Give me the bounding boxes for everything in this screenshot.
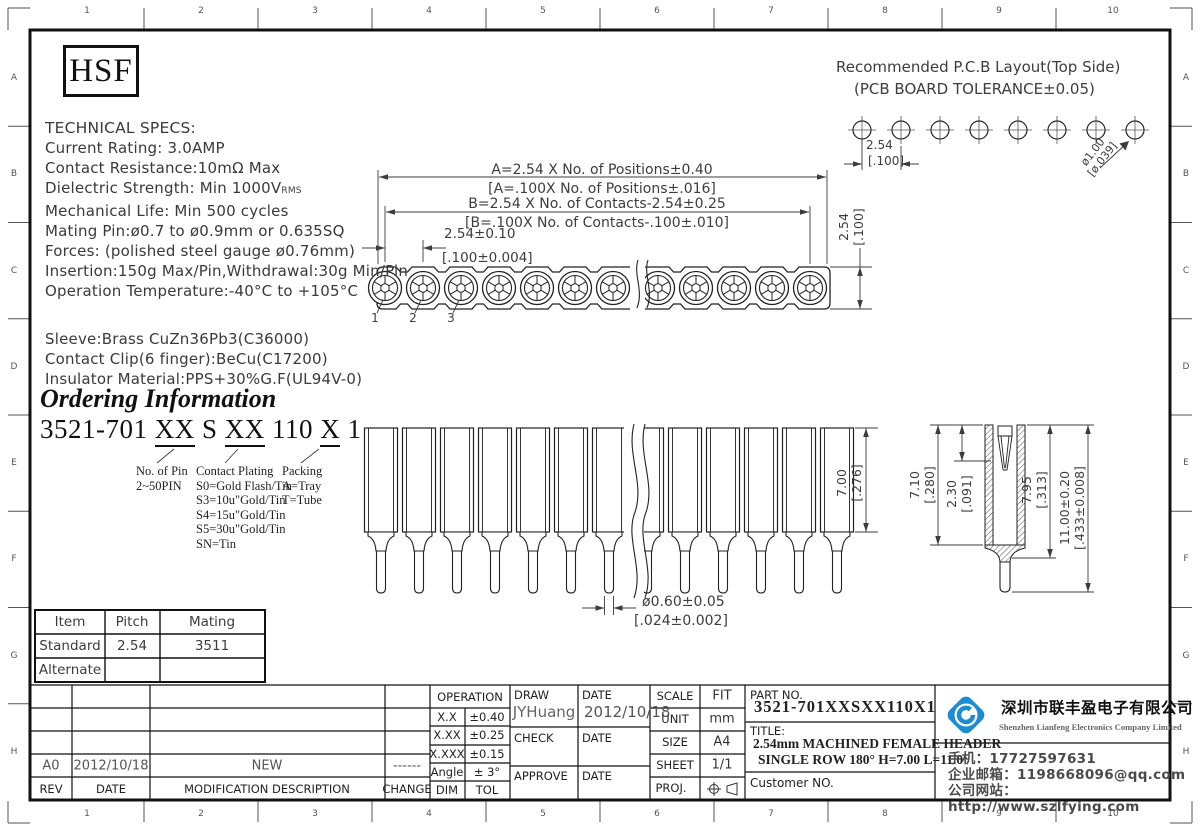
front-view-break-mask <box>624 422 644 602</box>
hsf-logo-text: HSF <box>69 53 133 90</box>
rev-description: NEW <box>252 759 283 774</box>
size-label: SIZE <box>662 735 688 749</box>
zone-letter: F <box>2 511 26 607</box>
dim-insulator-height: 7.00 [.276] <box>834 448 864 518</box>
rev-header: REV <box>39 782 62 796</box>
zone-number: 3 <box>258 809 372 825</box>
tol-val-4: ± 3° <box>474 765 500 779</box>
company-name-en: Shenzhen Lianfeng Electronics Company Li… <box>999 722 1182 732</box>
mating-row-standard: Standard <box>39 638 100 654</box>
zone-numbers-top: 12345678910 <box>30 6 1170 22</box>
operation-header: OPERATION <box>437 690 503 704</box>
zone-letter: A <box>2 30 26 126</box>
spec-line: Mechanical Life: Min 500 cycles <box>45 201 408 221</box>
date-header: DATE <box>96 782 126 796</box>
top-view-drawing <box>369 267 831 309</box>
pcb-layout-title: Recommended P.C.B Layout(Top Side) <box>836 58 1120 76</box>
dim-body-width: 2.54 [.100] <box>836 192 866 262</box>
spec-line-dielectric: Dielectric Strength: Min 1000VRMS <box>45 178 408 201</box>
dim-pitch-in: [.100±0.004] <box>442 250 533 266</box>
spec-line: Mating Pin:ø0.7 to ø0.9mm or 0.635SQ <box>45 221 408 241</box>
packing-placeholder: X <box>320 414 340 447</box>
dim-section-sleeve: 7.95 [.313] <box>1019 455 1049 525</box>
zone-number: 4 <box>372 809 486 825</box>
rev-change: ------ <box>393 759 421 774</box>
size-value: A4 <box>713 735 730 750</box>
zone-letter: E <box>1174 415 1198 511</box>
change-header: CHANGE <box>382 782 431 796</box>
draw-name: JYHuang <box>513 703 576 721</box>
mating-standard-pitch: 2.54 <box>117 638 147 654</box>
tol-val-1: ±0.40 <box>469 710 504 724</box>
zone-letters-right: ABCDEFGH <box>1174 30 1198 800</box>
approve-date-label: DATE <box>582 769 612 783</box>
ordering-option: S4=15u"Gold/Tin <box>196 508 292 523</box>
scale-value: FIT <box>712 689 731 704</box>
zone-number: 3 <box>258 6 372 22</box>
rev-date: 2012/10/18 <box>74 759 149 774</box>
zone-letter: B <box>2 126 26 222</box>
tol-val-2: ±0.25 <box>469 728 504 742</box>
part-no-value: 3521-701XXSXX110X1 <box>754 697 936 717</box>
spec-line: Forces: (polished steel gauge ø0.76mm) <box>45 241 408 261</box>
dim-a-in: [A=.100X No. of Positions±.016] <box>488 181 716 197</box>
dim-pin-diameter-in: [.024±0.002] <box>634 613 728 629</box>
scale-label: SCALE <box>657 689 694 703</box>
rms-subscript: RMS <box>281 186 301 196</box>
zone-letter: C <box>1174 223 1198 319</box>
material-line: Contact Clip(6 finger):BeCu(C17200) <box>45 349 408 369</box>
drawing-sheet: 12345678910 12345678910 ABCDEFGH ABCDEFG… <box>0 0 1200 831</box>
pcb-layout-subtitle: (PCB BOARD TOLERANCE±0.05) <box>854 80 1095 98</box>
ordering-option: S0=Gold Flash/Tin <box>196 479 292 494</box>
ordering-option: A=Tray <box>282 479 322 494</box>
zone-number: 2 <box>144 809 258 825</box>
mating-header-item: Item <box>55 614 86 630</box>
pcb-pitch-in: [.100] <box>868 154 904 168</box>
zone-letter: A <box>1174 30 1198 126</box>
ordering-plating-group: Contact Plating S0=Gold Flash/TinS3=10u"… <box>196 464 292 551</box>
company-website: 公司网站：http://www.szlfying.com <box>948 779 1200 815</box>
draw-date-label: DATE <box>582 688 612 702</box>
zone-number: 4 <box>372 6 486 22</box>
zone-letter: D <box>1174 319 1198 415</box>
zone-number: 5 <box>486 809 600 825</box>
dim-section-total: 11.00±0.20 [.433±0.008] <box>1057 448 1087 568</box>
zone-number: 2 <box>144 6 258 22</box>
spec-line: Insertion:150g Max/Pin,Withdrawal:30g Mi… <box>45 261 408 281</box>
ordering-option: 2~50PIN <box>136 479 188 494</box>
zone-number: 6 <box>600 6 714 22</box>
tol-dim-4: Angle <box>431 765 464 779</box>
mating-row-alternate: Alternate <box>39 662 101 678</box>
zone-number: 8 <box>828 6 942 22</box>
customer-no-label: Customer NO. <box>750 776 834 790</box>
sheet-value: 1/1 <box>712 758 733 773</box>
zone-number: 5 <box>486 6 600 22</box>
zone-letter: D <box>2 319 26 415</box>
zone-letter: C <box>2 223 26 319</box>
technical-specs: TECHNICAL SPECS: Current Rating: 3.0AMPC… <box>45 118 408 389</box>
tol-tol-label: TOL <box>476 783 498 797</box>
zone-letter: F <box>1174 511 1198 607</box>
tol-val-3: ±0.15 <box>469 747 504 761</box>
pin-number-3: 3 <box>447 311 455 325</box>
mating-standard-value: 3511 <box>195 638 229 654</box>
company-name-cn: 深圳市联丰盈电子有限公司 <box>1001 696 1193 718</box>
zone-number: 7 <box>714 6 828 22</box>
ordering-option: S5=30u"Gold/Tin <box>196 522 292 537</box>
tol-dim-3: X.XXX <box>429 747 464 761</box>
spec-line: Current Rating: 3.0AMP <box>45 138 408 158</box>
pin-number-2: 2 <box>409 311 417 325</box>
specs-materials: Sleeve:Brass CuZn36Pb3(C36000)Contact Cl… <box>45 329 408 389</box>
unit-label: UNIT <box>661 712 688 726</box>
ordering-option: SN=Tin <box>196 537 292 552</box>
ordering-pin-group: No. of Pin 2~50PIN <box>136 464 188 493</box>
spec-line: Contact Resistance:10mΩ Max <box>45 158 408 178</box>
zone-letter: G <box>1174 608 1198 704</box>
unit-value: mm <box>709 712 734 727</box>
approve-label: APPROVE <box>514 769 568 783</box>
dim-pin-diameter-mm: ø0.60±0.05 <box>642 594 725 610</box>
zone-letter: H <box>2 704 26 800</box>
ordering-option: T=Tube <box>282 493 322 508</box>
zone-number: 7 <box>714 809 828 825</box>
ordering-title: Ordering Information <box>40 384 276 414</box>
dim-pitch-mm: 2.54±0.10 <box>444 226 515 242</box>
proj-label: PROJ. <box>655 781 686 795</box>
front-view-drawing <box>365 428 854 593</box>
rev-value: A0 <box>42 759 59 774</box>
pin-number-1: 1 <box>371 311 379 325</box>
mating-header-mating: Mating <box>189 614 235 630</box>
dim-section-ins: 7.10 [.280] <box>907 450 937 520</box>
tol-dim-2: X.XX <box>433 728 460 742</box>
zone-number: 6 <box>600 809 714 825</box>
dim-b-mm: B=2.54 X No. of Contacts-2.54±0.25 <box>468 196 726 212</box>
company-logo <box>942 691 990 739</box>
zone-number: 10 <box>1056 6 1170 22</box>
tol-dim-label: DIM <box>436 783 458 797</box>
zone-number: 1 <box>30 809 144 825</box>
dim-section-entry: 2.30 [.091] <box>944 459 974 529</box>
specs-lines-b: Mechanical Life: Min 500 cyclesMating Pi… <box>45 201 408 301</box>
hsf-logo: HSF <box>63 45 139 97</box>
zone-letter: B <box>1174 126 1198 222</box>
check-date-label: DATE <box>582 731 612 745</box>
zone-letter: G <box>2 608 26 704</box>
modification-header: MODIFICATION DESCRIPTION <box>184 782 350 796</box>
pcb-pitch-mm: 2.54 <box>866 138 893 152</box>
zone-number: 8 <box>828 809 942 825</box>
zone-letter: E <box>2 415 26 511</box>
plating-placeholder: XX <box>225 414 265 447</box>
draw-label: DRAW <box>514 688 549 702</box>
part-title-line2: SINGLE ROW 180° H=7.00 L=11.0 <box>758 752 963 768</box>
sheet-label: SHEET <box>656 758 694 772</box>
ordering-option: S3=10u"Gold/Tin <box>196 493 292 508</box>
ordering-part-code: 3521-701 XX S XX 110 X 1 <box>40 414 362 445</box>
zone-number: 1 <box>30 6 144 22</box>
mating-header-pitch: Pitch <box>116 614 149 630</box>
pin-count-placeholder: XX <box>155 414 195 447</box>
zone-number: 9 <box>942 6 1056 22</box>
specs-title: TECHNICAL SPECS: <box>45 118 408 138</box>
spec-line: Operation Temperature:-40°C to +105°C <box>45 281 408 301</box>
dim-a-mm: A=2.54 X No. of Positions±0.40 <box>491 162 712 178</box>
specs-lines-a: Current Rating: 3.0AMPContact Resistance… <box>45 138 408 178</box>
zone-letters-left: ABCDEFGH <box>2 30 26 800</box>
material-line: Sleeve:Brass CuZn36Pb3(C36000) <box>45 329 408 349</box>
projection-symbol <box>707 782 737 796</box>
check-label: CHECK <box>514 731 554 745</box>
tol-dim-1: X.X <box>437 710 456 724</box>
draw-date-value: 2012/10/18 <box>584 703 670 721</box>
ordering-packing-group: Packing A=TrayT=Tube <box>282 464 322 508</box>
